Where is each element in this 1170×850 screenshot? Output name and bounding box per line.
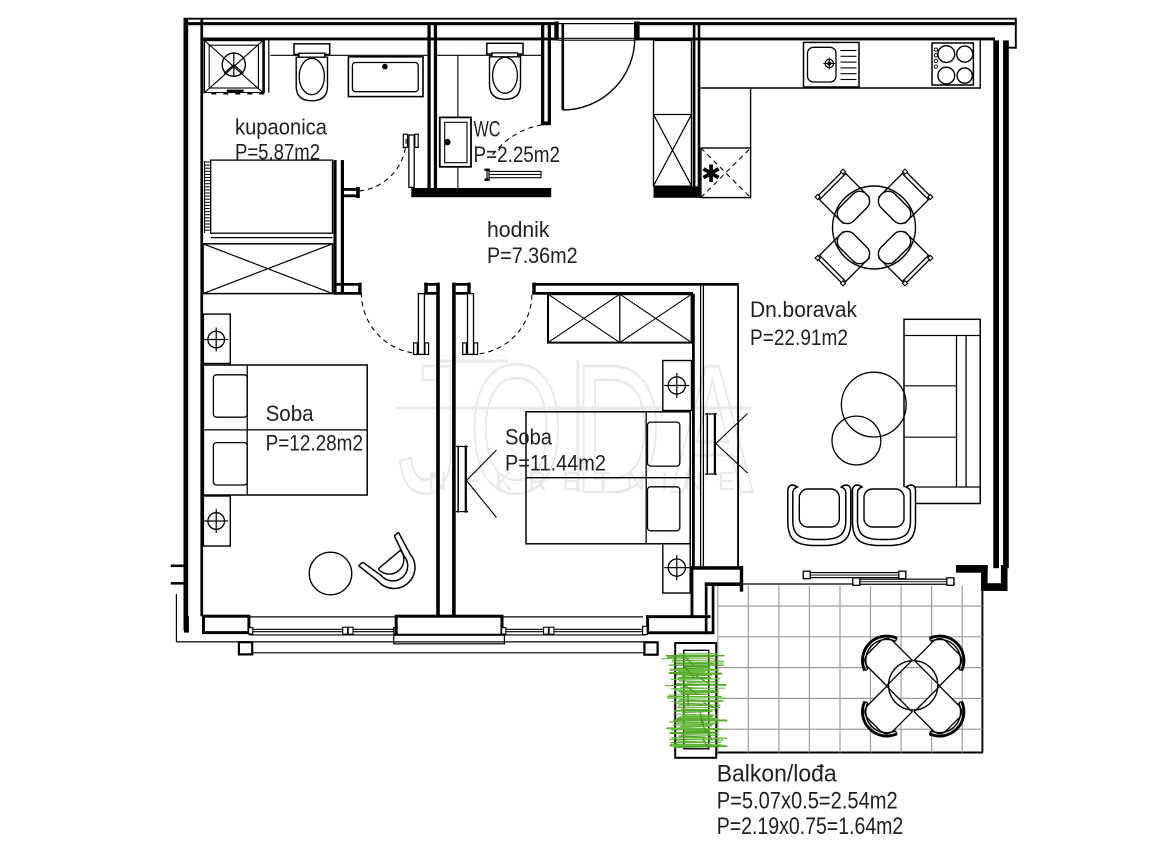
svg-text:Balkon/lođa: Balkon/lođa: [717, 761, 838, 788]
svg-text:P=5.87m2: P=5.87m2: [235, 140, 320, 165]
svg-text:Dn.boravak: Dn.boravak: [750, 297, 858, 322]
svg-text:P=2.19x0.75=1.64m2: P=2.19x0.75=1.64m2: [717, 813, 904, 840]
svg-text:P=5.07x0.5=2.54m2: P=5.07x0.5=2.54m2: [717, 787, 898, 814]
svg-text:P=7.36m2: P=7.36m2: [487, 243, 578, 268]
svg-text:P=11.44m2: P=11.44m2: [505, 451, 606, 476]
svg-text:P=22.91m2: P=22.91m2: [750, 325, 848, 350]
svg-text:✱: ✱: [701, 161, 721, 188]
svg-text:hodnik: hodnik: [487, 217, 550, 242]
svg-text:Soba: Soba: [505, 425, 553, 450]
svg-text:kupaonica: kupaonica: [235, 115, 328, 140]
svg-text:P=12.28m2: P=12.28m2: [266, 431, 363, 456]
svg-text:P=2.25m2: P=2.25m2: [474, 142, 561, 167]
svg-text:Soba: Soba: [266, 401, 315, 426]
svg-text:WC: WC: [474, 117, 501, 142]
